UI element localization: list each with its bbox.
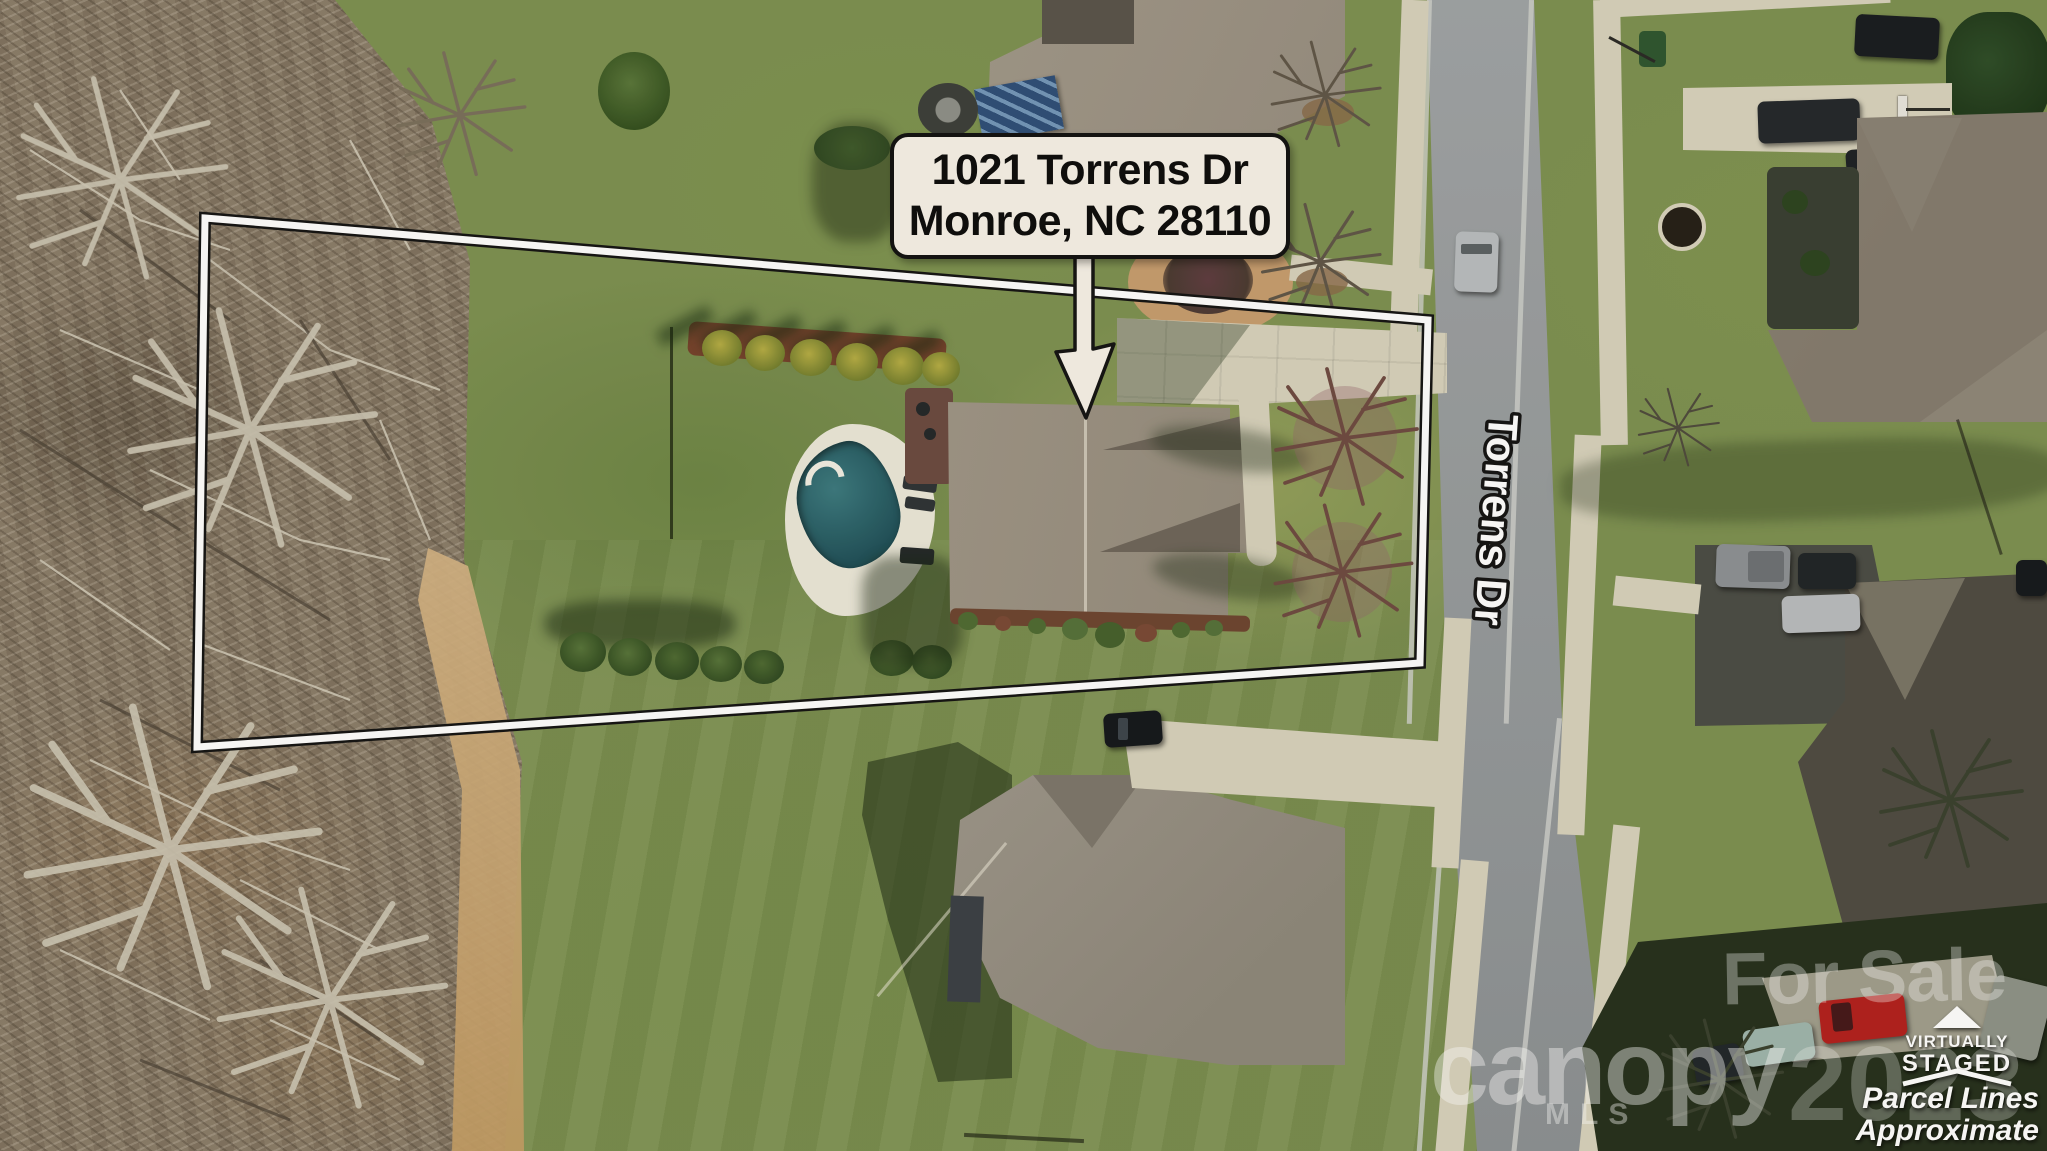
badge-base-layer bbox=[0, 0, 2047, 1151]
aerial-photo: 1021 Torrens Dr Monroe, NC 28110 Torrens… bbox=[0, 0, 2047, 1151]
disclaimer-line1: Parcel Lines bbox=[1862, 1082, 2039, 1116]
disclaimer-line2: Approximate bbox=[1856, 1114, 2039, 1148]
